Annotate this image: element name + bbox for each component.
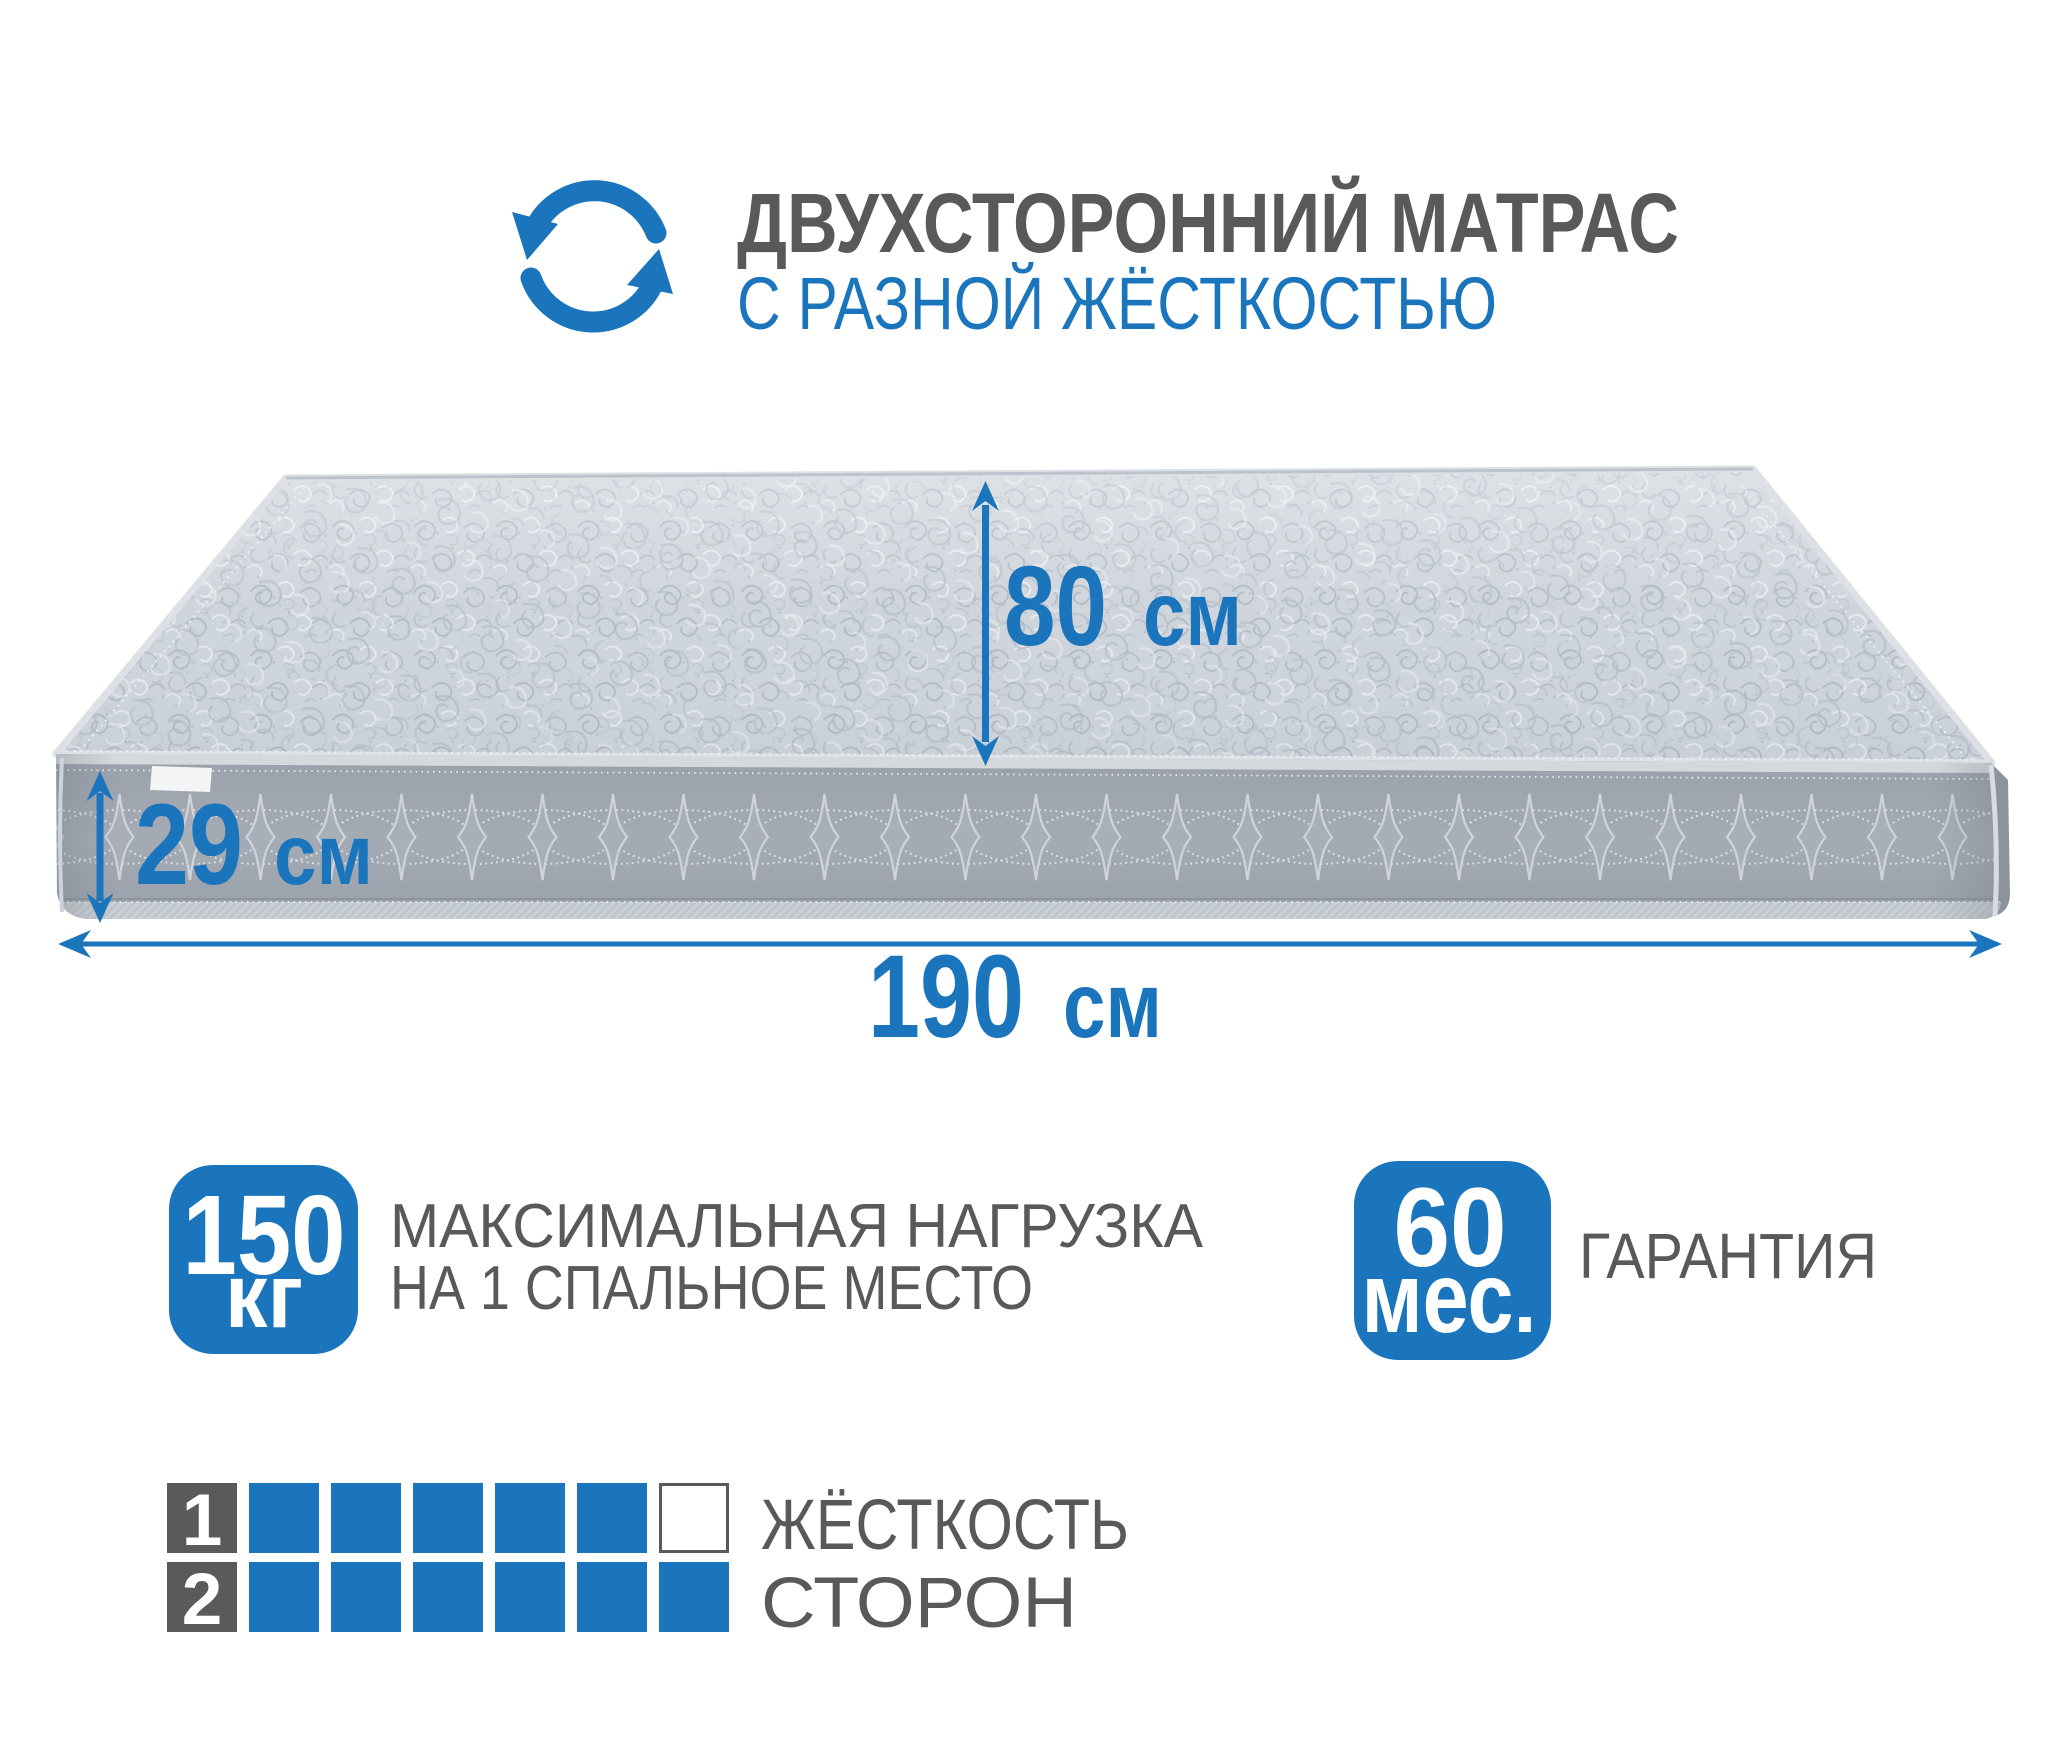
svg-text:НА 1 СПАЛЬНОЕ МЕСТО: НА 1 СПАЛЬНОЕ МЕСТО xyxy=(390,1254,1033,1323)
svg-text:С РАЗНОЙ ЖЁСТКОСТЬЮ: С РАЗНОЙ ЖЁСТКОСТЬЮ xyxy=(737,262,1497,345)
svg-text:см: см xyxy=(274,808,373,903)
svg-text:см: см xyxy=(1143,564,1242,665)
svg-text:ЖЁСТКОСТЬ: ЖЁСТКОСТЬ xyxy=(761,1486,1129,1565)
svg-text:190: 190 xyxy=(868,931,1024,1063)
svg-text:кг: кг xyxy=(225,1246,303,1347)
svg-text:см: см xyxy=(1063,953,1162,1057)
svg-text:1: 1 xyxy=(182,1480,223,1561)
svg-text:29: 29 xyxy=(135,781,243,909)
svg-text:ГАРАНТИЯ: ГАРАНТИЯ xyxy=(1579,1220,1877,1292)
svg-text:СТОРОН: СТОРОН xyxy=(761,1564,1077,1643)
svg-text:МАКСИМАЛЬНАЯ НАГРУЗКА: МАКСИМАЛЬНАЯ НАГРУЗКА xyxy=(390,1192,1204,1261)
svg-text:мес.: мес. xyxy=(1362,1242,1537,1354)
svg-text:80: 80 xyxy=(1004,543,1107,669)
svg-text:ДВУХСТОРОННИЙ МАТРАС: ДВУХСТОРОННИЙ МАТРАС xyxy=(737,176,1679,270)
svg-text:2: 2 xyxy=(182,1559,223,1640)
